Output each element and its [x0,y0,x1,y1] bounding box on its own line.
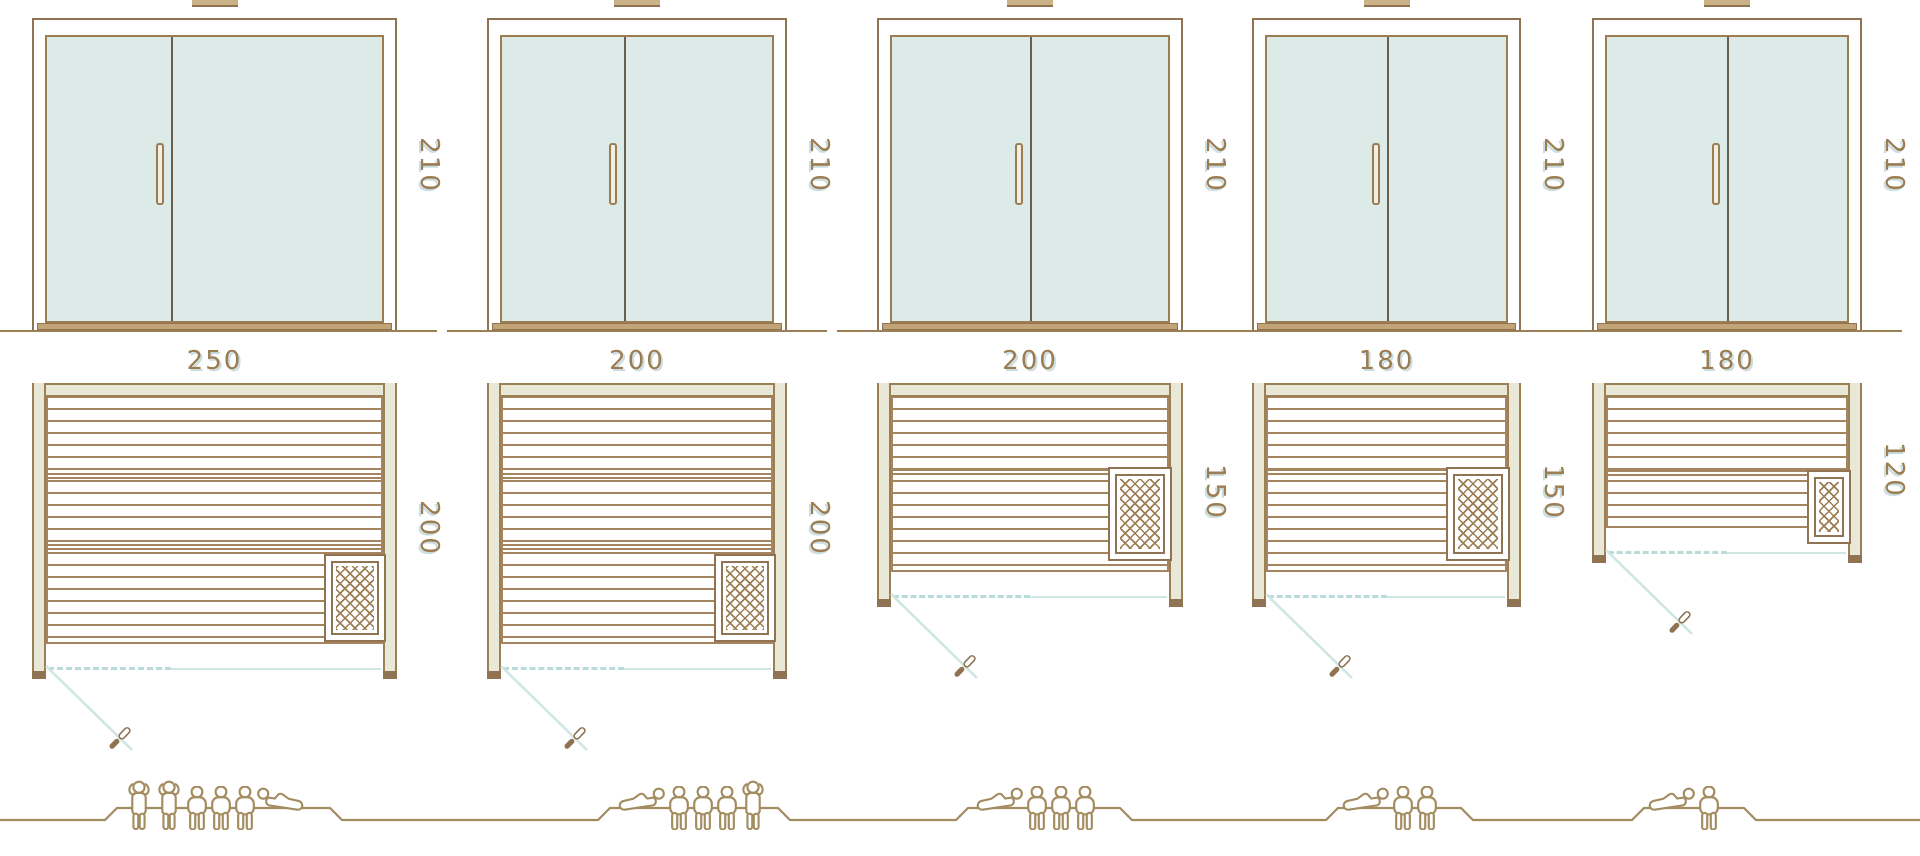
person-sitting-icon [1394,786,1412,829]
bench-edge-line [48,544,381,550]
door-swing-leaf-icon [1598,547,1728,657]
person-sitting-icon [1076,786,1094,829]
door-height-label: 210 [1880,125,1908,205]
heater-icon [1446,467,1510,561]
person-sitting-icon [670,786,688,829]
heater-core [1814,477,1844,537]
door-sill [492,323,782,330]
depth-dimension-label: 120 [1880,430,1908,510]
bench-edge-line [503,473,771,479]
person-sitting-icon [694,786,712,829]
door-elevation [1252,18,1521,332]
door-sill [1597,323,1857,330]
plan-wall-left [1592,383,1606,563]
capacity-figures [0,770,1920,856]
door-elevation [32,18,397,332]
door-divider [1387,37,1389,321]
door-elevation [1592,18,1862,332]
depth-dimension-label: 200 [415,488,443,568]
door-divider [1030,37,1032,321]
person-sitting-icon [1418,786,1436,829]
ground-line [0,330,437,332]
door-divider [171,37,173,321]
glass-door-panel [500,35,774,323]
door-height-label: 210 [805,125,833,205]
width-dimension-label: 200 [877,347,1183,375]
door-swing-leaf-icon [38,663,168,773]
heater-core [1453,474,1503,554]
person-lying-icon [978,789,1022,810]
person-sitting-icon [212,786,230,829]
bench-edge-line [503,544,771,550]
glass-door-panel [45,35,384,323]
stepped-ground-line [0,808,1920,820]
door-swing-leaf-icon [883,591,1013,701]
width-dimension-label: 180 [1252,347,1521,375]
person-lying-icon [1344,789,1388,810]
roof-vent-icon [1007,0,1053,7]
person-standing-icon [129,782,148,829]
door-swing-leaf-icon [493,663,623,773]
plan-wall-left [32,383,46,679]
heater-mesh [726,566,764,630]
sauna-unit-3: 200 210 150 [877,0,1183,856]
roof-vent-icon [192,0,238,7]
plan-wall-top [1252,383,1521,397]
sauna-unit-2: 200 210 200 [487,0,787,856]
depth-dimension-label: 150 [1539,452,1567,532]
person-sitting-icon [1028,786,1046,829]
front-glass-line [1727,552,1846,554]
plan-wall-top [32,383,397,397]
heater-core [721,561,769,635]
person-standing-icon [743,782,762,829]
width-dimension-label: 200 [487,347,787,375]
ground-line [447,330,827,332]
sauna-size-comparison-diagram: 250 210 200 [0,0,1920,856]
heater-icon [714,554,776,642]
bench-edge-line [48,473,381,479]
front-glass-line [1030,596,1167,598]
plan-wall-top [877,383,1183,397]
heater-icon [1108,467,1172,561]
roof-vent-icon [1704,0,1750,7]
ground-line [837,330,1223,332]
heater-mesh [1819,482,1839,532]
door-handle-icon [1712,143,1720,205]
heater-icon [1807,470,1851,544]
person-sitting-icon [236,786,254,829]
roof-vent-icon [1364,0,1410,7]
person-lying-icon [1650,789,1694,810]
heater-mesh [1120,479,1160,549]
door-sill [882,323,1178,330]
sauna-unit-1: 250 210 200 [32,0,397,856]
person-sitting-icon [1052,786,1070,829]
plan-wall-top [487,383,787,397]
door-height-label: 210 [1201,125,1229,205]
width-dimension-label: 250 [32,347,397,375]
width-dimension-label: 180 [1592,347,1862,375]
door-divider [1727,37,1729,321]
door-elevation [487,18,787,332]
glass-door-panel [890,35,1170,323]
door-handle-icon [609,143,617,205]
depth-dimension-label: 150 [1201,452,1229,532]
front-glass-line [624,668,771,670]
ground-line [1552,330,1902,332]
ground-line [1212,330,1561,332]
floor-plan [487,383,787,681]
door-divider [624,37,626,321]
door-sill [37,323,392,330]
sauna-unit-4: 180 210 150 [1252,0,1521,856]
heater-core [331,561,379,635]
floor-plan [32,383,397,681]
door-handle-icon [1372,143,1380,205]
door-height-label: 210 [415,125,443,205]
door-handle-icon [156,143,164,205]
plan-wall-left [1252,383,1266,607]
roof-vent-icon [614,0,660,7]
heater-core [1115,474,1165,554]
floor-plan [877,383,1183,609]
person-sitting-icon [718,786,736,829]
glass-door-panel [1605,35,1849,323]
sauna-unit-5: 180 210 120 [1592,0,1862,856]
front-glass-line [1387,596,1506,598]
plan-wall-left [487,383,501,679]
floor-plan [1592,383,1862,565]
front-glass-line [171,668,381,670]
door-swing-leaf-icon [1258,591,1388,701]
heater-icon [324,554,386,642]
person-sitting-icon [1700,786,1718,829]
depth-dimension-label: 200 [805,488,833,568]
floor-plan [1252,383,1521,609]
person-lying-icon [258,789,302,810]
glass-door-panel [1265,35,1508,323]
heater-mesh [1458,479,1498,549]
person-lying-icon [620,789,664,810]
door-elevation [877,18,1183,332]
person-sitting-icon [188,786,206,829]
door-handle-icon [1015,143,1023,205]
door-height-label: 210 [1539,125,1567,205]
plan-wall-top [1592,383,1862,397]
person-standing-icon [159,782,178,829]
door-sill [1257,323,1516,330]
heater-mesh [336,566,374,630]
plan-wall-left [877,383,891,607]
